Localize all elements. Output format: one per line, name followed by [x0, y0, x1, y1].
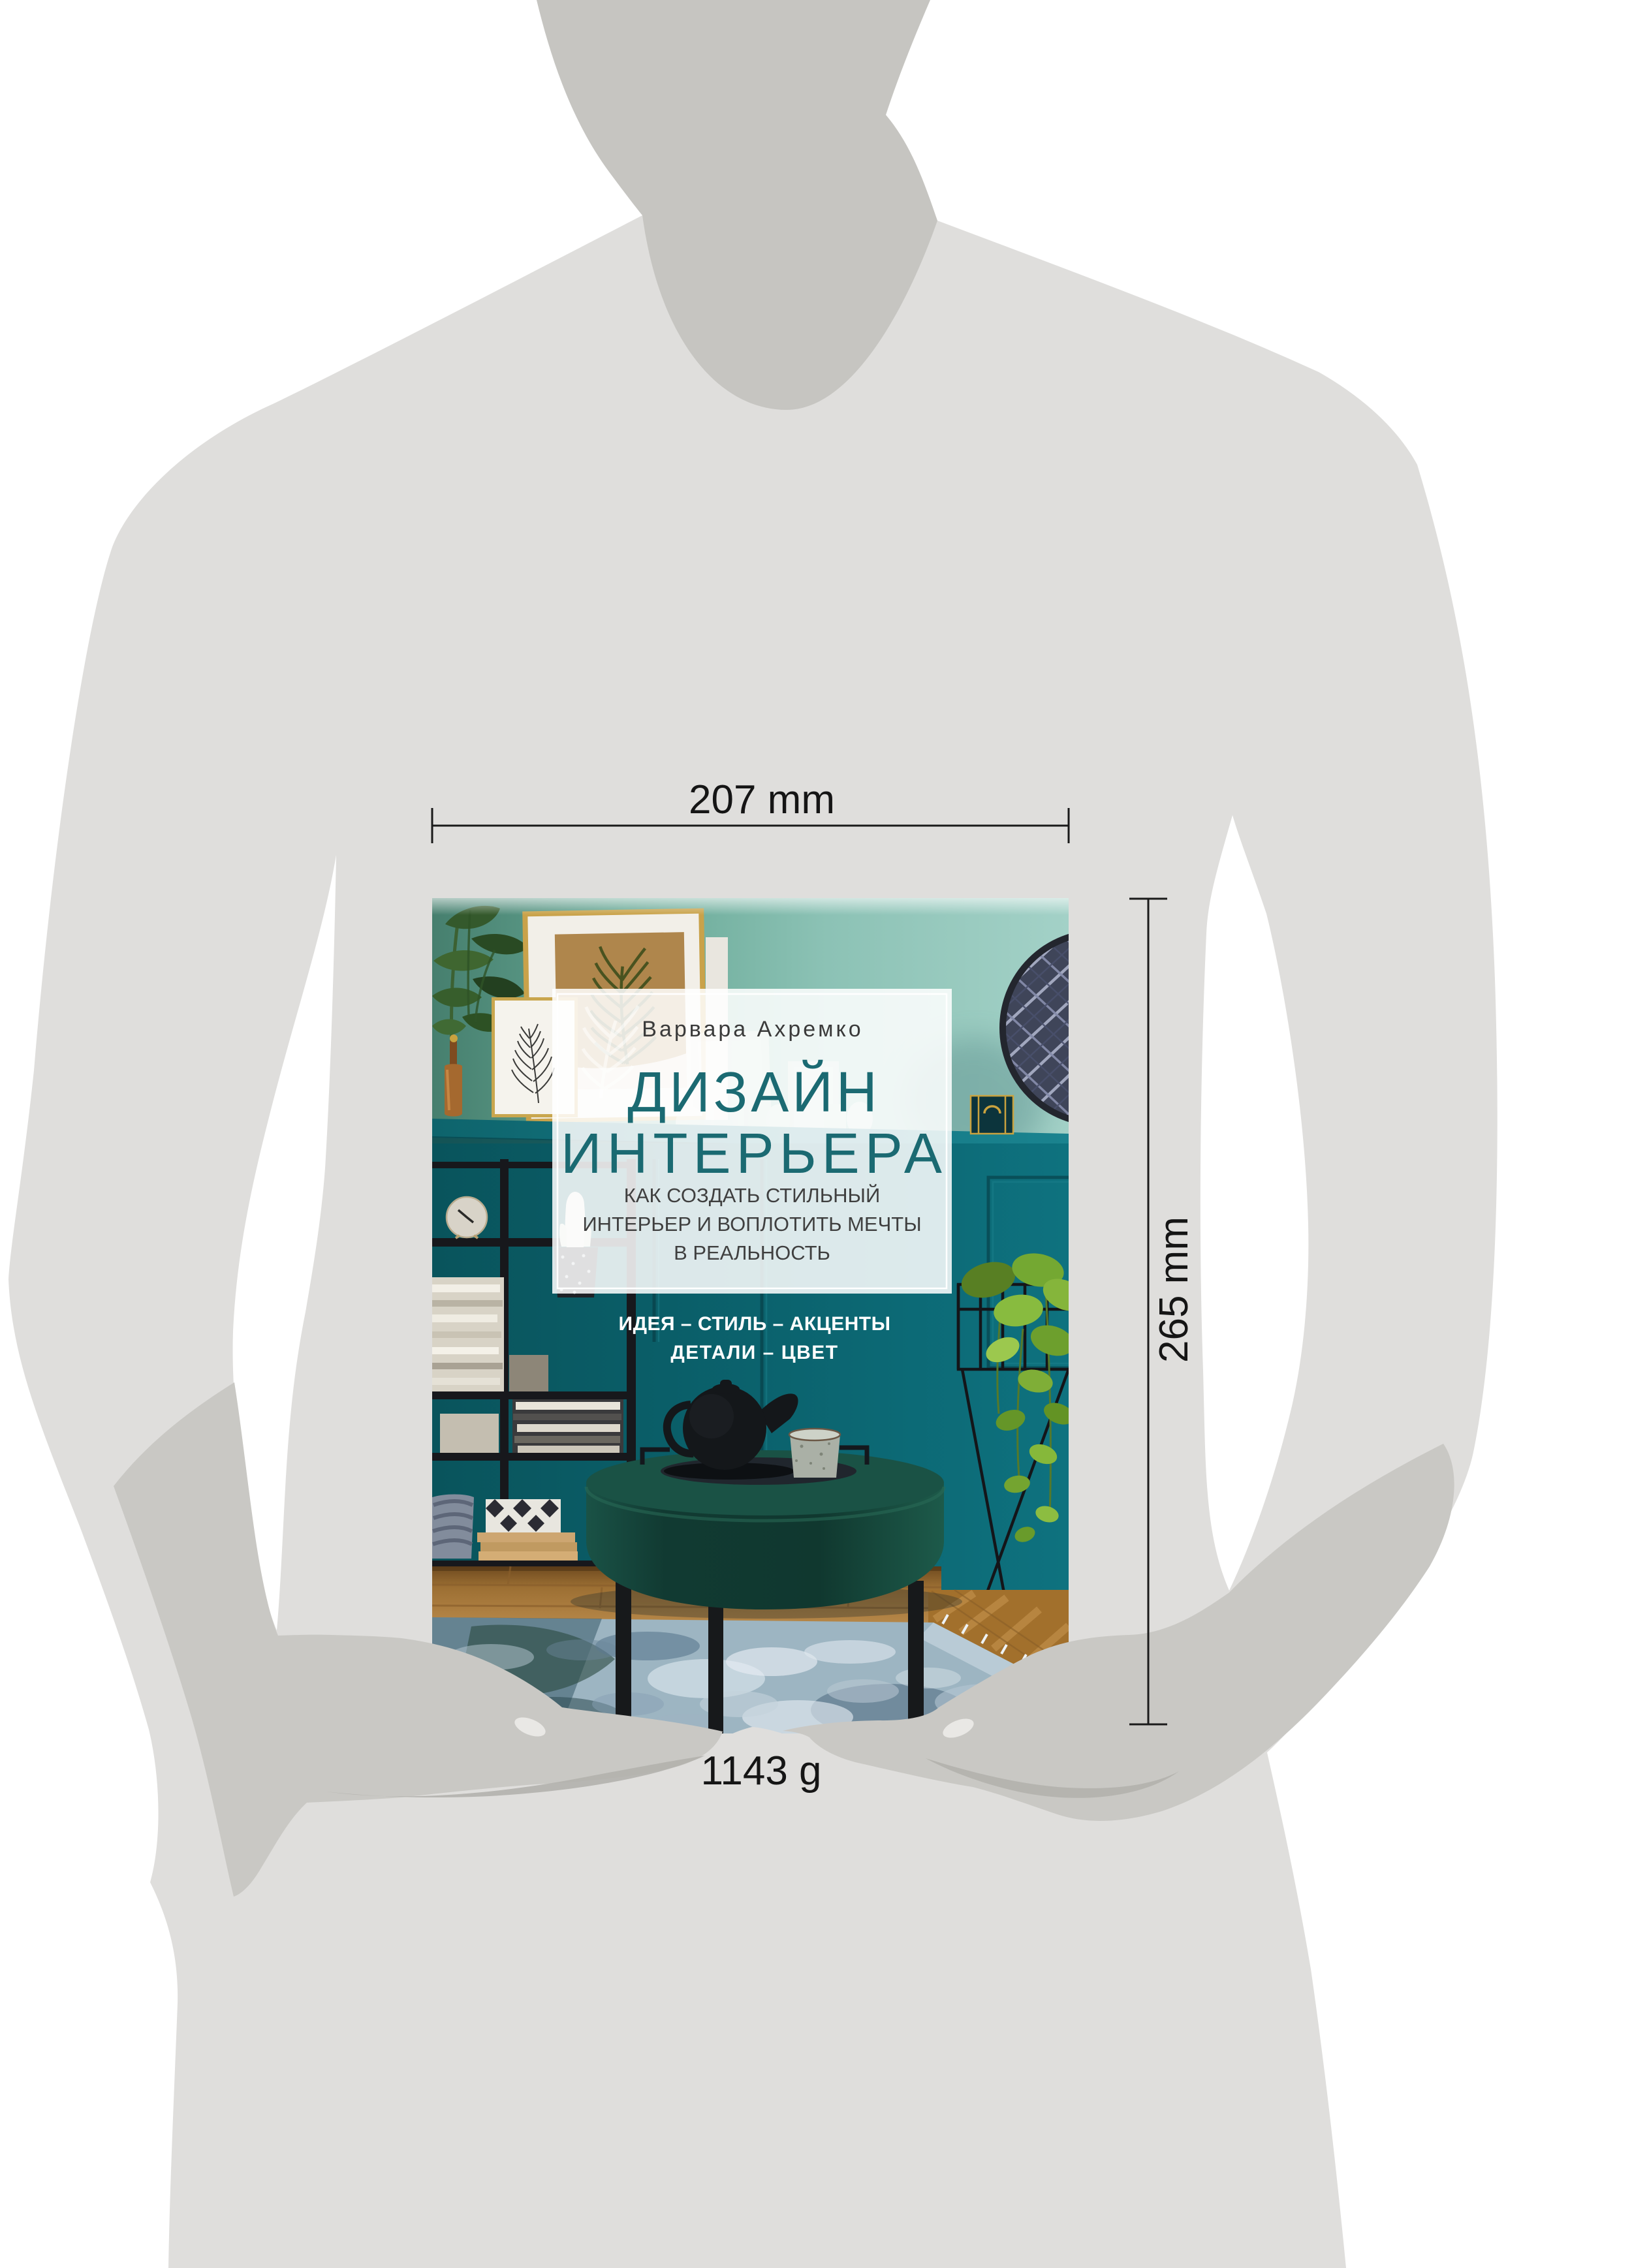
svg-text:265 mm: 265 mm: [1152, 1217, 1197, 1363]
svg-text:1143 g: 1143 g: [700, 1748, 821, 1794]
svg-text:207 mm: 207 mm: [689, 777, 835, 822]
